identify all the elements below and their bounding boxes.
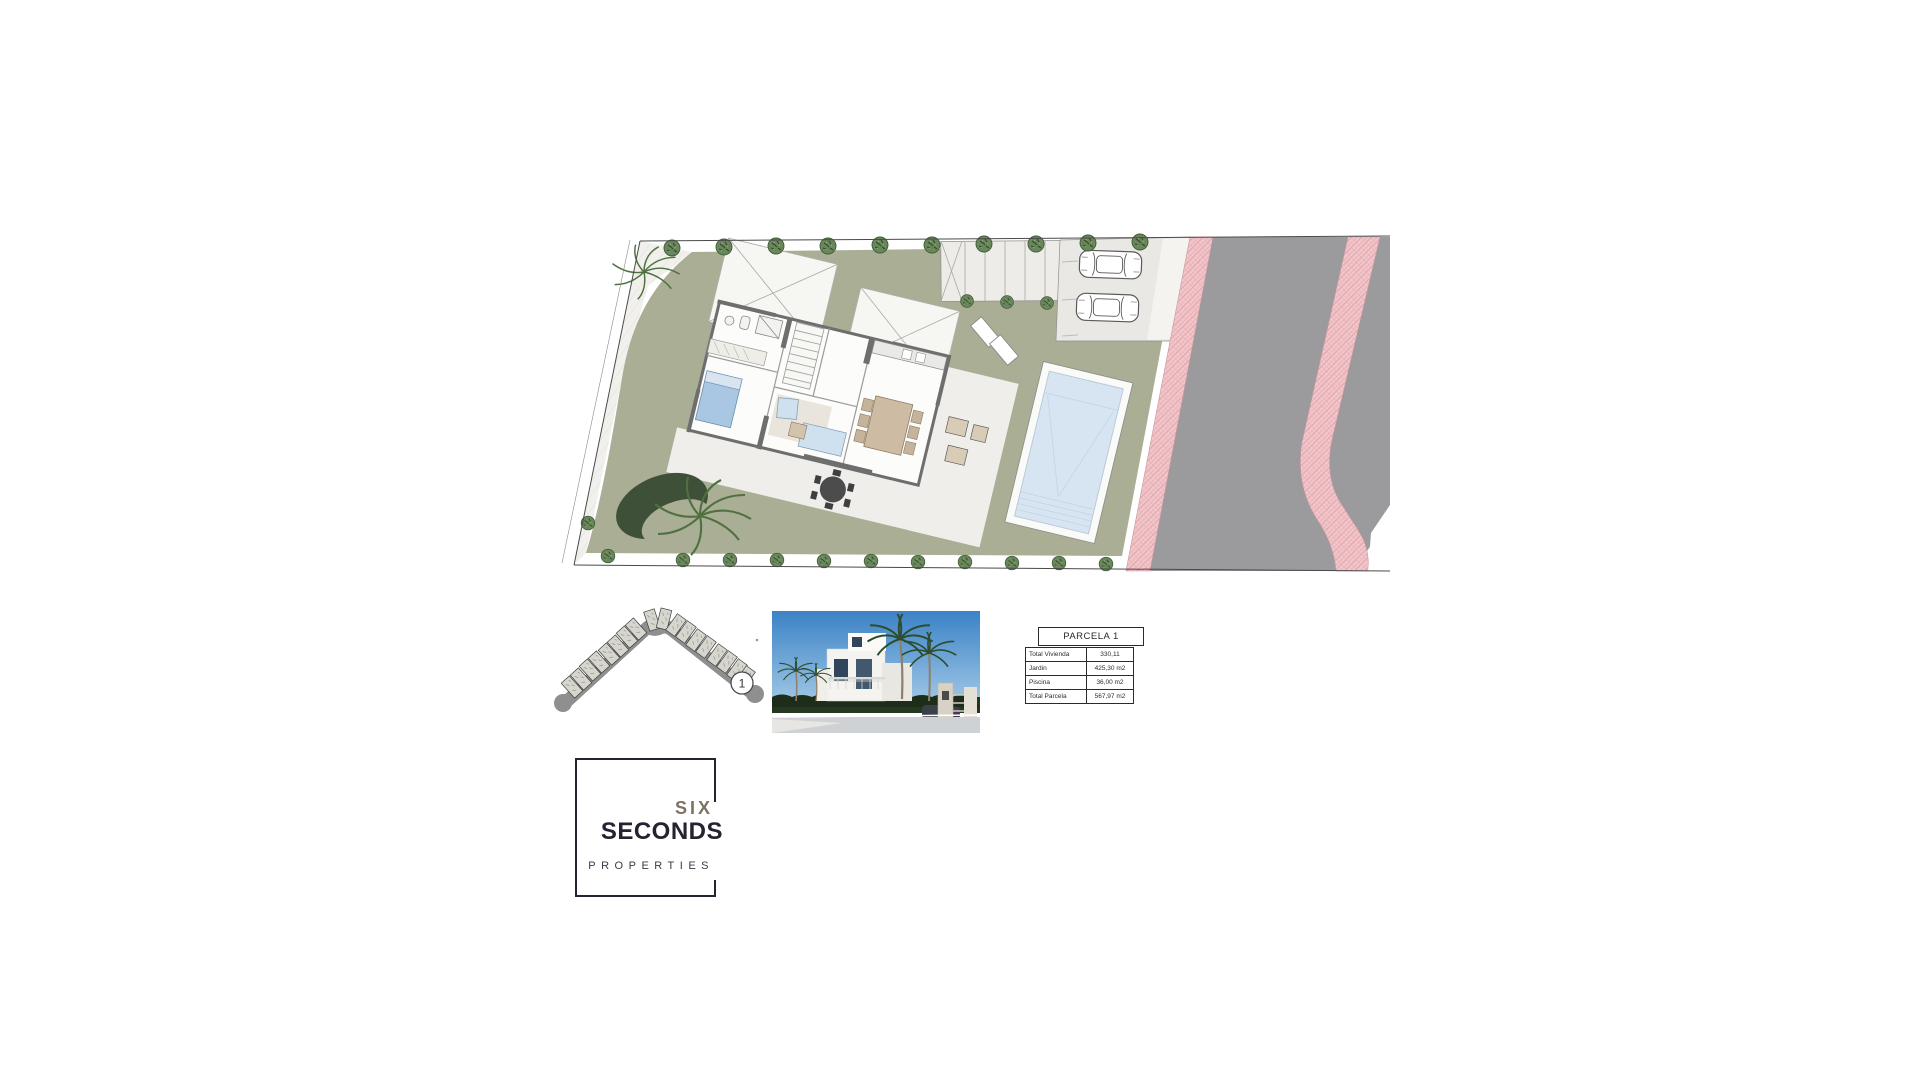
row-value: 330,11 xyxy=(1087,648,1133,661)
row-value: 567,97 m2 xyxy=(1087,690,1133,703)
logo-word-six: SIX xyxy=(675,798,713,819)
stray-mark xyxy=(756,639,759,642)
parcel-number-badge: 1 xyxy=(731,672,753,694)
table-row: Total Parcela 567,97 m2 xyxy=(1026,690,1133,703)
logo-word-seconds: SECONDS xyxy=(601,818,723,846)
row-value: 425,30 m2 xyxy=(1087,662,1133,675)
row-label: Total Parcela xyxy=(1026,690,1087,703)
logo-frame xyxy=(575,758,577,897)
six-seconds-properties-logo: SIX SECONDS PROPERTIES xyxy=(575,758,716,897)
svg-text:1: 1 xyxy=(739,677,746,691)
table-title: PARCELA 1 xyxy=(1038,627,1144,646)
table-row: Total Vivienda 330,11 xyxy=(1026,648,1133,662)
car-icon xyxy=(1079,250,1142,279)
parcel-data-table: PARCELA 1 Total Vivienda 330,11 Jardin 4… xyxy=(1025,627,1145,704)
villa-render-photo xyxy=(772,611,980,733)
row-label: Jardin xyxy=(1026,662,1087,675)
parking-area xyxy=(1056,237,1191,341)
logo-word-properties: PROPERTIES xyxy=(588,860,714,872)
pergola xyxy=(941,240,1063,301)
row-label: Total Vivienda xyxy=(1026,648,1087,661)
car-icon xyxy=(1076,293,1139,322)
row-label: Piscina xyxy=(1026,676,1087,689)
table-row: Jardin 425,30 m2 xyxy=(1026,662,1133,676)
development-key-map: 1 xyxy=(548,600,778,740)
plan-sheet: 1 xyxy=(0,0,1920,1080)
row-value: 36,00 m2 xyxy=(1087,676,1133,689)
table-row: Piscina 36,00 m2 xyxy=(1026,676,1133,690)
site-plan-drawing xyxy=(555,230,1395,578)
